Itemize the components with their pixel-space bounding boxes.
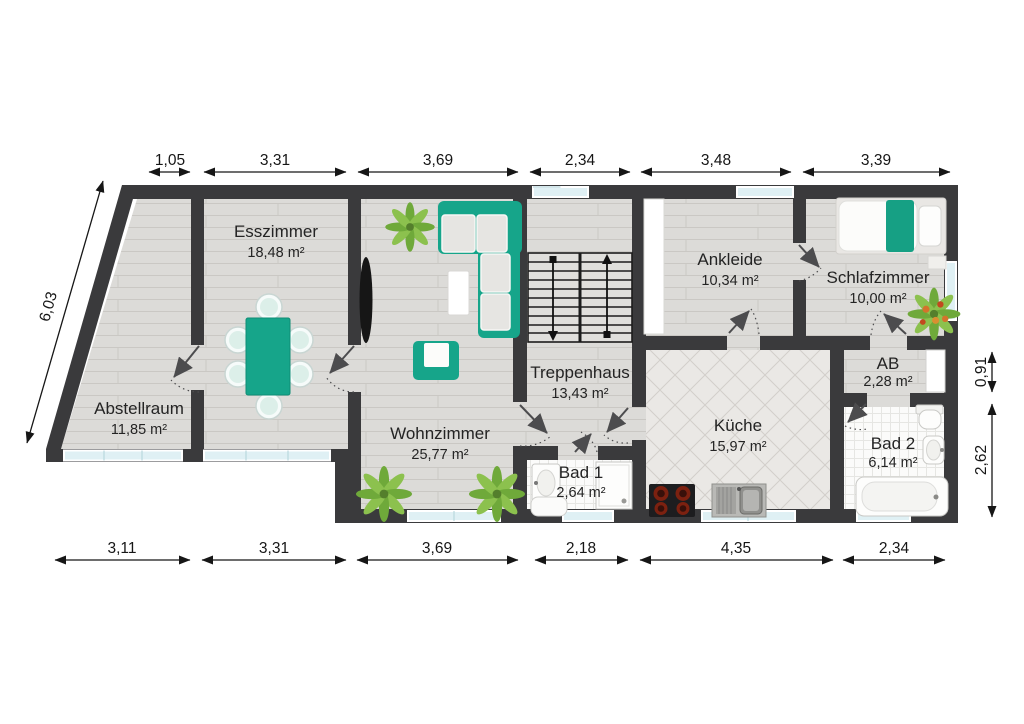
room-label-bad1: Bad 1 (559, 463, 603, 482)
ab-cabinet (926, 350, 945, 392)
bed-blanket (886, 200, 914, 252)
room-label-ankleide: Ankleide (697, 250, 762, 269)
room-area-abstellraum: 11,85 m² (111, 422, 167, 438)
coffee-table (448, 271, 469, 315)
room-label-schlafzimmer: Schlafzimmer (827, 268, 930, 287)
room-label-kueche: Küche (714, 416, 762, 435)
room-label-wohnzimmer: Wohnzimmer (390, 424, 490, 443)
room-area-ab: 2,28 m² (863, 374, 912, 390)
room-label-bad2: Bad 2 (871, 434, 915, 453)
window-esszimmer (204, 451, 330, 461)
plant-icon (469, 466, 525, 522)
wall-connector (335, 449, 361, 523)
room-label-abstellraum: Abstellraum (94, 399, 184, 418)
room-area-ankleide: 10,34 m² (701, 273, 758, 289)
room-label-treppenhaus: Treppenhaus (530, 363, 630, 382)
window-treppenhaus (533, 187, 588, 197)
floor-plan-page: Esszimmer 18,48 m² Abstellraum 11,85 m² … (0, 0, 1024, 724)
nightstand (928, 256, 946, 269)
dining-table (246, 318, 290, 395)
window-abstellraum (64, 451, 182, 461)
room-area-schlafzimmer: 10,00 m² (849, 291, 906, 307)
dim-top-1: 3,31 (260, 152, 290, 169)
dim-bottom-4: 4,35 (721, 540, 751, 557)
room-area-bad1: 2,64 m² (556, 485, 605, 501)
plant-icon (385, 202, 435, 252)
dim-bottom-1: 3,31 (259, 540, 289, 557)
dim-left-0: 6,03 (36, 290, 61, 324)
sink (923, 436, 944, 464)
wardrobe (644, 199, 664, 334)
room-label-ab: AB (877, 354, 900, 373)
stove (649, 484, 695, 517)
stairs (528, 253, 632, 342)
room-label-esszimmer: Esszimmer (234, 222, 318, 241)
window-bad1 (563, 511, 613, 521)
room-area-bad2: 6,14 m² (868, 455, 917, 471)
room-area-kueche: 15,97 m² (709, 439, 766, 455)
kitchen-sink (712, 484, 766, 517)
dim-bottom-2: 3,69 (422, 540, 452, 557)
dim-bottom-3: 2,18 (566, 540, 596, 557)
armchair (413, 341, 459, 380)
room-area-wohnzimmer: 25,77 m² (411, 447, 468, 463)
dim-top-0: 1,05 (155, 152, 185, 169)
dim-top-2: 3,69 (423, 152, 453, 169)
plant-icon (356, 466, 412, 522)
dim-top-4: 3,48 (701, 152, 731, 169)
dim-bottom-5: 2,34 (879, 540, 910, 557)
room-area-esszimmer: 18,48 m² (247, 245, 304, 261)
dim-right-1: 2,62 (973, 445, 990, 475)
bed (836, 198, 946, 254)
tv (360, 257, 373, 343)
window-ankleide (737, 187, 793, 197)
dim-bottom-0: 3,11 (107, 540, 136, 557)
dim-right-0: 0,91 (973, 357, 990, 387)
bed-pillow (919, 206, 941, 246)
toilet (916, 405, 943, 429)
flower-plant-icon (908, 288, 961, 341)
dim-top-5: 3,39 (861, 152, 891, 169)
dim-top-3: 2,34 (565, 152, 596, 169)
floor-plan: Esszimmer 18,48 m² Abstellraum 11,85 m² … (0, 0, 1024, 724)
bathtub (856, 477, 948, 516)
room-area-treppenhaus: 13,43 m² (551, 386, 608, 402)
